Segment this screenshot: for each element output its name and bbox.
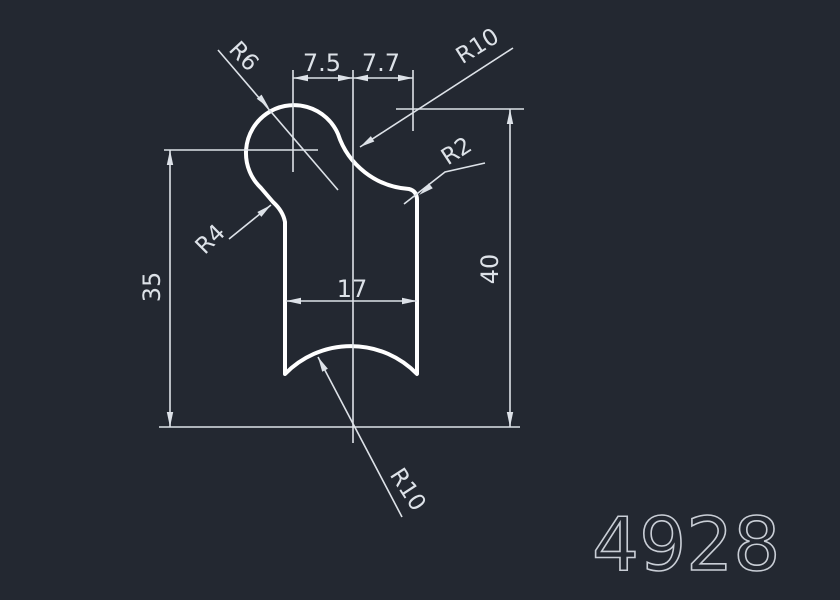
dim-label-17: 17 [337,275,368,303]
cad-drawing-canvas: 7.5 7.7 17 35 40 R6 R10 R2 R4 R10 4928 [0,0,840,600]
dim-label-35: 35 [138,272,166,303]
part-number-text: 4928 [592,502,780,588]
dim-label-7-7: 7.7 [362,49,400,77]
dim-label-40: 40 [476,254,504,285]
dim-label-7-5: 7.5 [303,49,341,77]
